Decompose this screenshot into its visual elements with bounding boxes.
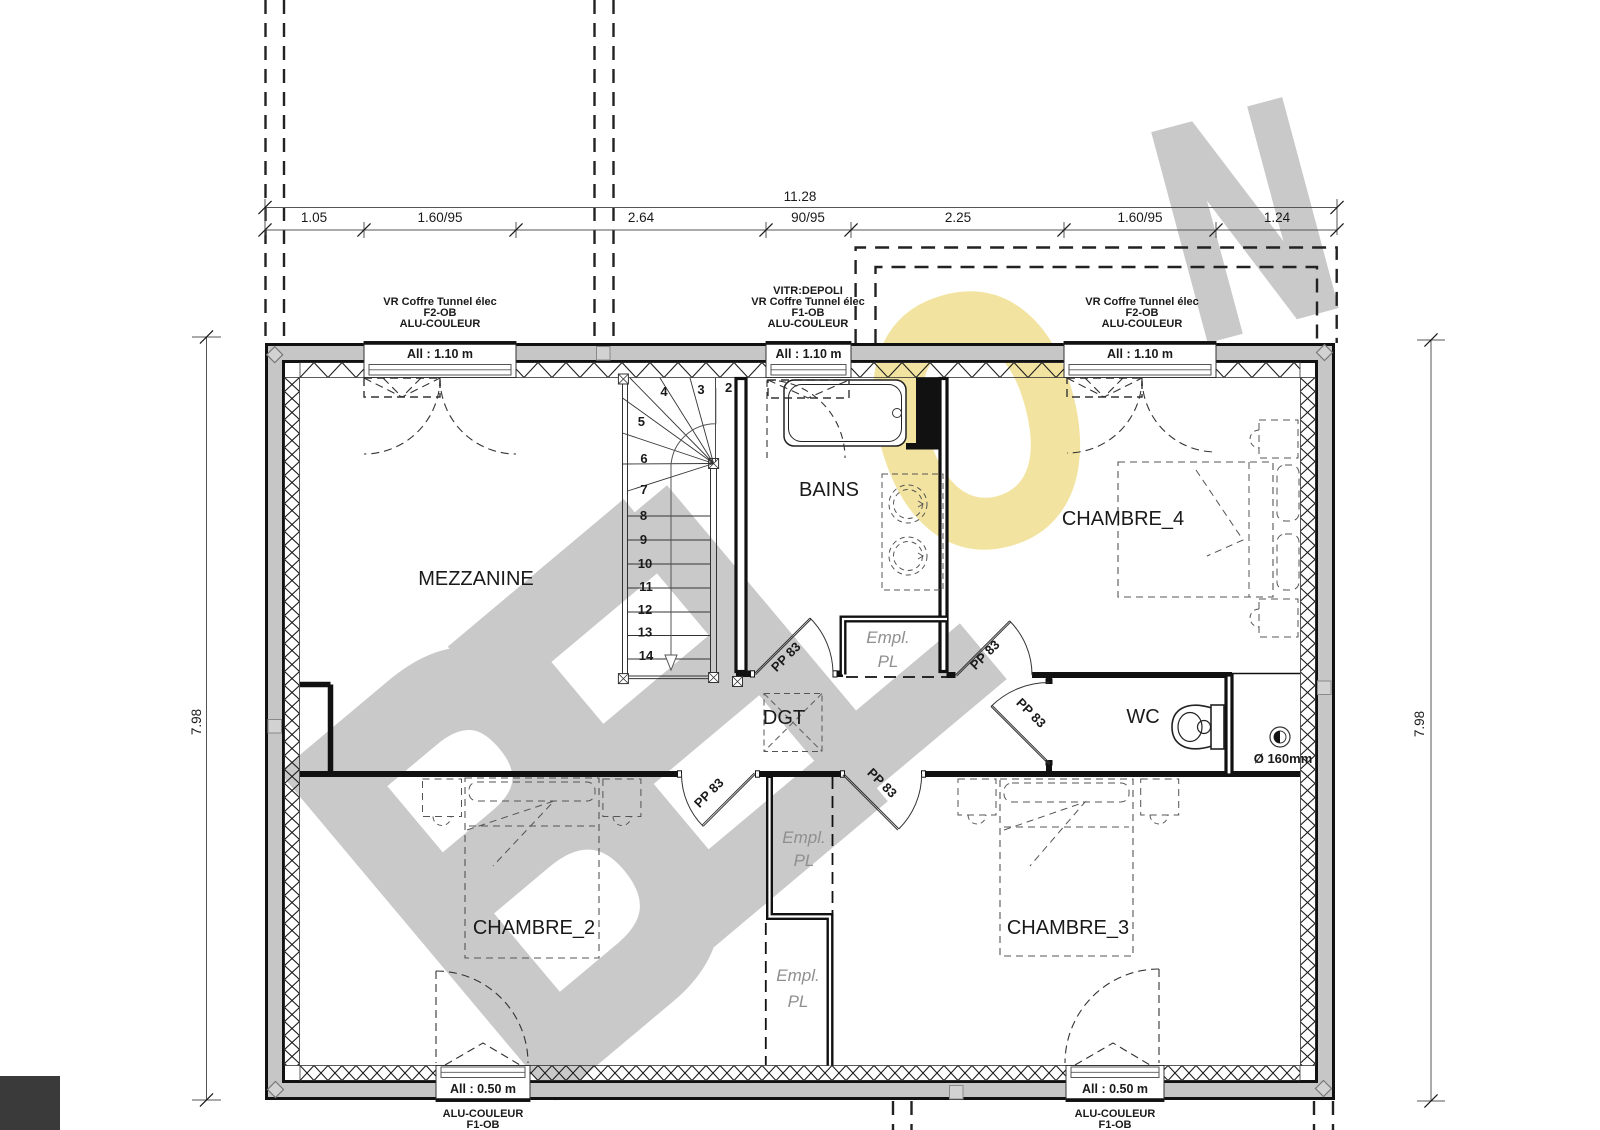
svg-text:3: 3 <box>697 382 704 397</box>
svg-text:ALU-COULEUR: ALU-COULEUR <box>400 318 481 330</box>
svg-text:6: 6 <box>640 451 647 466</box>
svg-text:CHAMBRE_4: CHAMBRE_4 <box>1062 508 1184 530</box>
svg-text:13: 13 <box>638 625 652 640</box>
svg-text:7.98: 7.98 <box>189 709 204 735</box>
svg-text:CHAMBRE_3: CHAMBRE_3 <box>1007 917 1129 939</box>
svg-text:1.60/95: 1.60/95 <box>1117 210 1162 225</box>
svg-text:90/95: 90/95 <box>791 210 825 225</box>
svg-text:9: 9 <box>640 532 647 547</box>
svg-text:4: 4 <box>660 384 668 399</box>
svg-text:1.60/95: 1.60/95 <box>417 210 462 225</box>
svg-text:Ø 160mm: Ø 160mm <box>1254 751 1313 766</box>
svg-text:2.64: 2.64 <box>628 210 655 225</box>
svg-text:All : 1.10 m: All : 1.10 m <box>776 347 842 361</box>
svg-text:Empl.: Empl. <box>782 828 825 847</box>
svg-text:11: 11 <box>639 579 653 594</box>
svg-text:MEZZANINE: MEZZANINE <box>418 568 534 590</box>
svg-text:F1-OB: F1-OB <box>1099 1119 1132 1130</box>
svg-text:CHAMBRE_2: CHAMBRE_2 <box>473 917 595 939</box>
svg-text:12: 12 <box>638 602 652 617</box>
svg-text:All : 1.10 m: All : 1.10 m <box>407 347 473 361</box>
svg-text:10: 10 <box>638 556 652 571</box>
svg-text:ALU-COULEUR: ALU-COULEUR <box>1102 318 1183 330</box>
svg-text:All : 1.10 m: All : 1.10 m <box>1107 347 1173 361</box>
svg-text:F1-OB: F1-OB <box>467 1119 500 1130</box>
svg-text:7.98: 7.98 <box>1412 711 1427 737</box>
svg-text:All : 0.50 m: All : 0.50 m <box>1082 1082 1148 1096</box>
svg-text:2: 2 <box>725 380 732 395</box>
svg-text:ALU-COULEUR: ALU-COULEUR <box>768 318 849 330</box>
svg-text:Empl.: Empl. <box>776 966 819 985</box>
svg-text:DGT: DGT <box>763 707 805 729</box>
svg-text:All : 0.50 m: All : 0.50 m <box>450 1082 516 1096</box>
svg-text:PL: PL <box>788 992 809 1011</box>
svg-text:8: 8 <box>640 508 647 523</box>
svg-text:14: 14 <box>639 648 654 663</box>
svg-text:7: 7 <box>640 482 647 497</box>
svg-text:1.05: 1.05 <box>301 210 327 225</box>
svg-text:PL: PL <box>794 851 815 870</box>
svg-text:WC: WC <box>1126 706 1159 728</box>
svg-text:2.25: 2.25 <box>945 210 971 225</box>
svg-text:BAINS: BAINS <box>799 479 859 501</box>
svg-text:5: 5 <box>638 414 645 429</box>
svg-text:Empl.: Empl. <box>866 628 909 647</box>
svg-text:1.24: 1.24 <box>1264 210 1291 225</box>
svg-text:PL: PL <box>878 652 899 671</box>
svg-text:11.28: 11.28 <box>784 189 817 204</box>
